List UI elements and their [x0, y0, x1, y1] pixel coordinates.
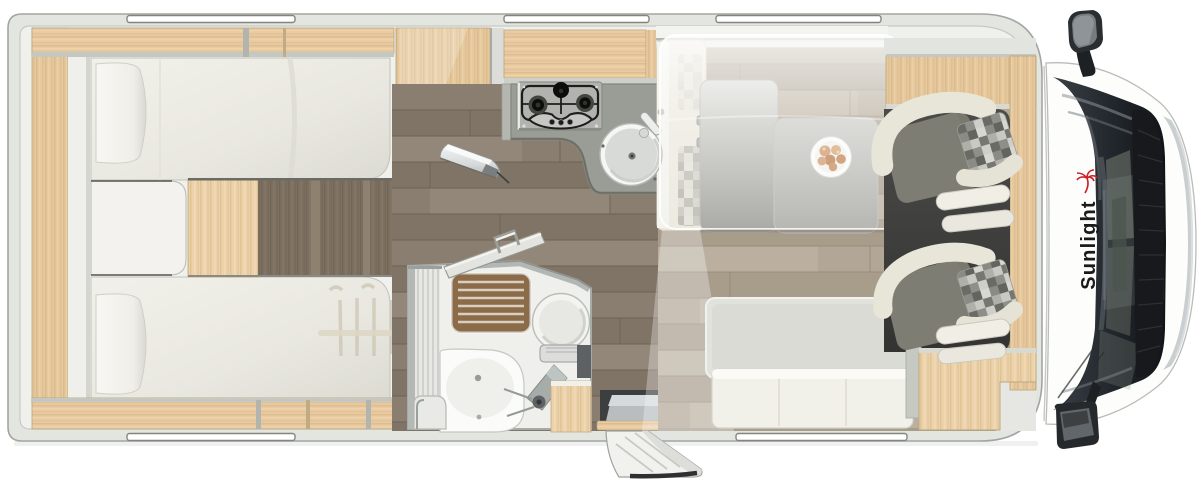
svg-text:Sunlight: Sunlight — [1078, 200, 1100, 290]
